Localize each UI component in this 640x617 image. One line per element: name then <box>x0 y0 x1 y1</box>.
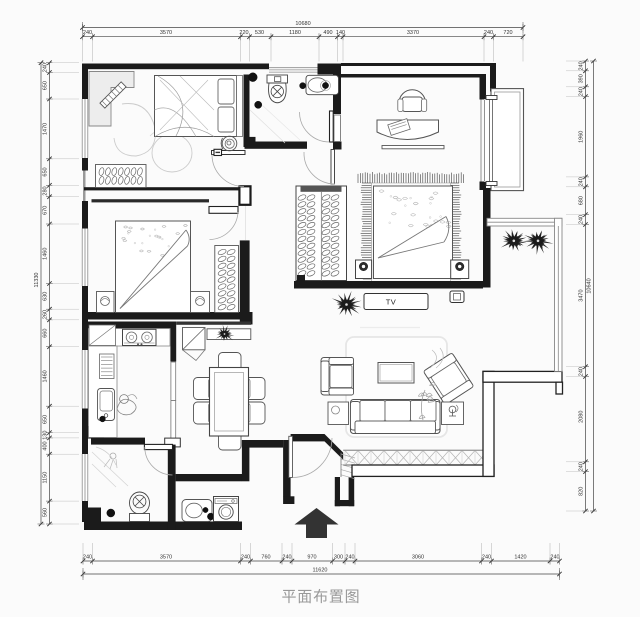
svg-text:1460: 1460 <box>42 248 48 260</box>
svg-text:560: 560 <box>42 508 48 517</box>
svg-text:650: 650 <box>42 415 48 424</box>
svg-text:3570: 3570 <box>160 30 172 36</box>
svg-text:240: 240 <box>578 87 584 96</box>
svg-text:140: 140 <box>336 30 345 36</box>
svg-text:240: 240 <box>83 30 92 36</box>
svg-text:390: 390 <box>578 74 584 83</box>
svg-text:260: 260 <box>42 310 48 319</box>
svg-text:240: 240 <box>578 177 584 186</box>
svg-text:240: 240 <box>484 30 493 36</box>
svg-text:630: 630 <box>42 292 48 301</box>
svg-text:240: 240 <box>578 215 584 224</box>
svg-text:680: 680 <box>578 196 584 205</box>
svg-text:240: 240 <box>241 555 250 561</box>
svg-text:970: 970 <box>307 555 316 561</box>
svg-text:1420: 1420 <box>514 555 526 561</box>
svg-text:3470: 3470 <box>578 289 584 301</box>
svg-text:1960: 1960 <box>578 131 584 143</box>
svg-text:1470: 1470 <box>42 123 48 135</box>
svg-text:240: 240 <box>550 555 559 561</box>
svg-text:10680: 10680 <box>295 21 310 27</box>
svg-text:650: 650 <box>42 167 48 176</box>
svg-text:820: 820 <box>578 487 584 496</box>
svg-text:240: 240 <box>42 63 48 72</box>
svg-text:130: 130 <box>42 431 48 440</box>
svg-text:3570: 3570 <box>160 555 172 561</box>
svg-text:240: 240 <box>345 555 354 561</box>
svg-text:11330: 11330 <box>34 273 40 288</box>
svg-text:220: 220 <box>239 30 248 36</box>
svg-text:760: 760 <box>261 555 270 561</box>
svg-text:10640: 10640 <box>587 278 593 293</box>
svg-text:240: 240 <box>578 61 584 70</box>
svg-text:300: 300 <box>334 555 343 561</box>
svg-text:240: 240 <box>578 367 584 376</box>
svg-text:1150: 1150 <box>42 472 48 484</box>
svg-text:3370: 3370 <box>407 30 419 36</box>
svg-text:660: 660 <box>42 329 48 338</box>
svg-text:490: 490 <box>323 30 332 36</box>
svg-text:240: 240 <box>282 555 291 561</box>
svg-text:400: 400 <box>42 441 48 450</box>
svg-text:280: 280 <box>42 186 48 195</box>
svg-text:3060: 3060 <box>412 555 424 561</box>
svg-text:TV: TV <box>386 298 397 307</box>
svg-text:240: 240 <box>578 462 584 471</box>
svg-text:11620: 11620 <box>313 568 328 574</box>
svg-text:240: 240 <box>83 555 92 561</box>
svg-text:1180: 1180 <box>289 30 301 36</box>
svg-text:1460: 1460 <box>42 370 48 382</box>
svg-text:670: 670 <box>42 206 48 215</box>
svg-text:2080: 2080 <box>578 411 584 423</box>
svg-text:240: 240 <box>482 555 491 561</box>
svg-text:720: 720 <box>503 30 512 36</box>
svg-text:平面布置图: 平面布置图 <box>281 589 360 606</box>
svg-text:650: 650 <box>42 81 48 90</box>
svg-text:530: 530 <box>255 30 264 36</box>
